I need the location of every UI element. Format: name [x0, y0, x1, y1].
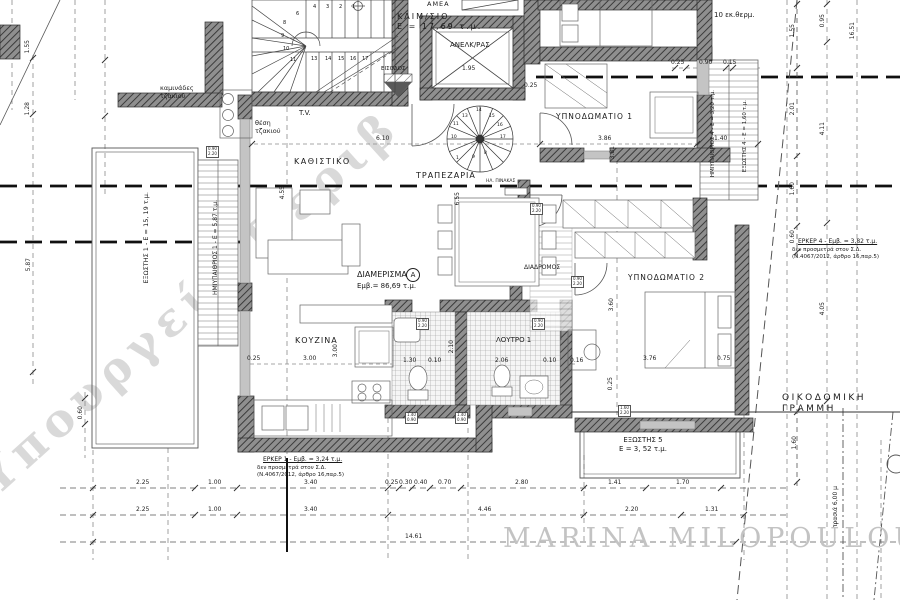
dim: 2.20 [625, 506, 638, 514]
window-tag: 1.60 2.20 [618, 405, 631, 417]
dim-total: 14.61 [405, 533, 422, 541]
label-staircase: ΚΛΙΜ/ΣΙΟ Ε = 17,69 τ.μ. [397, 12, 482, 32]
label-semi-outdoor-1: ΗΜΙΥΠΑΙΘΡΙΟΣ 1 - Ε = 5,87 τ.μ. [212, 200, 220, 295]
label-tv: T.V. [299, 109, 311, 118]
dim: 1.40 [714, 135, 727, 143]
dim: 1.60 [789, 182, 797, 195]
window-tag: 1.40 0.90 [455, 412, 468, 424]
window-tag: 1.40 0.90 [405, 412, 418, 424]
label-dining-room: ΤΡΑΠΕΖΑΡΙΑ [416, 171, 476, 181]
label-apartment-area: Εμβ.= 86,69 τ.μ. [357, 282, 416, 291]
spiral-number: 17 [500, 135, 506, 141]
stair-number: 3 [326, 4, 329, 10]
stair-number: 6 [296, 11, 299, 17]
dim: 3.86 [598, 135, 611, 143]
door-tag: 0.90 2.20 [530, 203, 543, 215]
stair-number: 4 [313, 4, 316, 10]
note-erker4-title: ΕΡΚΕΡ 4 - Εμβ. = 3,82 τ.μ. [798, 238, 877, 246]
dim: 1.41 [608, 479, 621, 487]
note-erker4-body: δεν προσμετρά στον Σ.Δ. (Ν.4067/2012, άρ… [792, 247, 879, 261]
door-tag: 0.90 2.20 [416, 318, 429, 330]
dim: 3.60 [608, 298, 616, 311]
stair-number: 13 [311, 56, 317, 62]
dim: 0.30 [399, 479, 412, 487]
label-living-room: ΚΑΘΙΣΤΙΚΟ [294, 157, 351, 167]
dim: 1.95 [462, 65, 475, 73]
stair-number: 11 [290, 57, 296, 63]
stair-number: 16 [350, 56, 356, 62]
dim: 3.00 [303, 355, 316, 363]
main-staircase [252, 0, 400, 92]
dim: 2.01 [789, 102, 797, 115]
dim: 2.25 [136, 506, 149, 514]
label-building-line: ΟΙΚΟΔΟΜΙΚΗ ΓΡΑΜΜΗ [782, 393, 900, 416]
dim: 0.25 [607, 377, 615, 390]
dim: 0.15 [723, 59, 736, 67]
dim: 3.40 [304, 479, 317, 487]
dim: 6.10 [376, 135, 389, 143]
stair-number: 14 [325, 56, 331, 62]
floor-plan-sheet: Υπουργείο Περιβ [0, 0, 900, 600]
dim: 0.25 [671, 59, 684, 67]
label-fireplace-position: θέση τζακιού [255, 119, 281, 135]
dim: 6.55 [454, 192, 462, 205]
label-entrance: ΕΙΣΟΔΟΣ [381, 66, 405, 73]
dim: 3.40 [304, 506, 317, 514]
dim: 4.05 [819, 302, 827, 315]
dim: 1.55 [789, 24, 797, 37]
label-chimneys: καμινάδες τζακιού [160, 84, 194, 100]
dim: 4.11 [819, 122, 827, 135]
dim: 1.55 [24, 40, 32, 53]
apartment-badge: A [406, 268, 420, 282]
spiral-number: 1 [456, 156, 459, 162]
stair-number: 15 [338, 56, 344, 62]
note-erker1-body: δεν προσμετρά στον Σ.Δ. (Ν.4067/2012, άρ… [257, 465, 344, 479]
stair-number: 17 [362, 56, 368, 62]
spiral-number: 11 [453, 122, 459, 128]
label-semi-outdoor-4: ΗΜΙΥΠΑΙΘΡΙΟΣ 4 - Ε = 3,20 τ.μ. [710, 90, 717, 177]
label-bathroom-1: ΛΟΥΤΡΟ 1 [496, 336, 531, 345]
floor-plan-drawing [0, 0, 900, 600]
dim: 0.40 [414, 479, 427, 487]
stair-number: 10 [283, 46, 289, 52]
dim: 2.06 [495, 357, 508, 365]
dim: 0.70 [438, 479, 451, 487]
dim: 2.10 [448, 340, 456, 353]
dim: 0.60 [77, 406, 85, 419]
stair-number: 1 [352, 4, 355, 10]
dim: 0.95 [819, 14, 827, 27]
elevator-shaft [432, 28, 513, 88]
dim: 0.10 [543, 357, 556, 365]
dim: 4.55 [279, 186, 287, 199]
dim: 16.51 [849, 22, 857, 39]
stair-number: 2 [339, 4, 342, 10]
spiral-number: 10 [451, 135, 457, 141]
label-balcony-5: ΕΞΩΣΤΗΣ 5 Ε = 3, 52 τ.μ. [608, 436, 678, 454]
electrical-panel [505, 188, 527, 195]
dim: 3.76 [643, 355, 656, 363]
dim: 3.81 [609, 146, 617, 159]
dim: 0.90 [699, 59, 712, 67]
dim: 1.31 [705, 506, 718, 514]
door-tag: 0.90 2.20 [571, 276, 584, 288]
dim: 1.28 [24, 102, 32, 115]
dim: 0.25 [524, 82, 537, 90]
dim: 4.46 [478, 506, 491, 514]
note-erker1-title: ΕΡΚΕΡ 1 - Εμβ. = 3,24 τ.μ. [263, 456, 342, 464]
label-amea: ΑΜΕΑ [427, 0, 450, 8]
spiral-number: 15 [489, 114, 495, 120]
dim: 1.60 [791, 436, 799, 449]
label-corridor: ΔΙΑΔΡΟΜΟΣ [524, 264, 560, 272]
stair-number: 8 [283, 20, 286, 26]
label-electrical-panel: ΗΛ. ΠΙΝΑΚΑΣ [486, 179, 515, 185]
label-elevator: ΑΝΕΛΚ/ΡΑΣ [450, 41, 490, 50]
spiral-number: 16 [497, 123, 503, 129]
label-bedroom-1: ΥΠΝΟΔΩΜΑΤΙΟ 1 [556, 112, 633, 121]
label-insulation: 10 εκ.θερμ. [714, 11, 754, 20]
amea-lift [462, 0, 518, 10]
dim: 1.00 [208, 506, 221, 514]
label-balcony-4: ΕΞΩΣΤΗΣ 4 - Ε = 1,60 τ.μ. [742, 100, 749, 172]
dim: 0.10 [428, 357, 441, 365]
dim: 2.25 [136, 479, 149, 487]
door-tag: 0.90 2.20 [206, 146, 219, 158]
label-grass-setback: πρασιά 6,00 μ [832, 486, 840, 528]
dim: 5.87 [25, 258, 33, 271]
door-tag: 0.90 2.20 [532, 318, 545, 330]
spiral-number: 8 [484, 151, 487, 157]
dim: 1.70 [676, 479, 689, 487]
dim: 3.00 [332, 344, 340, 357]
dim: 0.75 [717, 355, 730, 363]
label-bedroom-2: ΥΠΝΟΔΩΜΑΤΙΟ 2 [628, 273, 705, 282]
watermark-signature: MARINA MILOPOULOU [503, 523, 900, 554]
dim: 1.00 [208, 479, 221, 487]
dim: 0.25 [247, 355, 260, 363]
stair-number: 9 [281, 33, 284, 39]
dim: 0.60 [789, 230, 797, 243]
dim: 0.25 [385, 479, 398, 487]
dim: 0.16 [570, 357, 583, 365]
label-balcony-1: ΕΞΩΣΤΗΣ 1 - Ε = 15, 19 τ.μ. [142, 192, 150, 284]
dim: 1.30 [403, 357, 416, 365]
spiral-number: 9 [472, 155, 475, 161]
label-apartment: ΔΙΑΜΕΡΙΣΜΑ [357, 270, 407, 280]
spiral-number: 13 [462, 114, 468, 120]
spiral-number: 14 [476, 108, 482, 114]
dim: 2.80 [515, 479, 528, 487]
